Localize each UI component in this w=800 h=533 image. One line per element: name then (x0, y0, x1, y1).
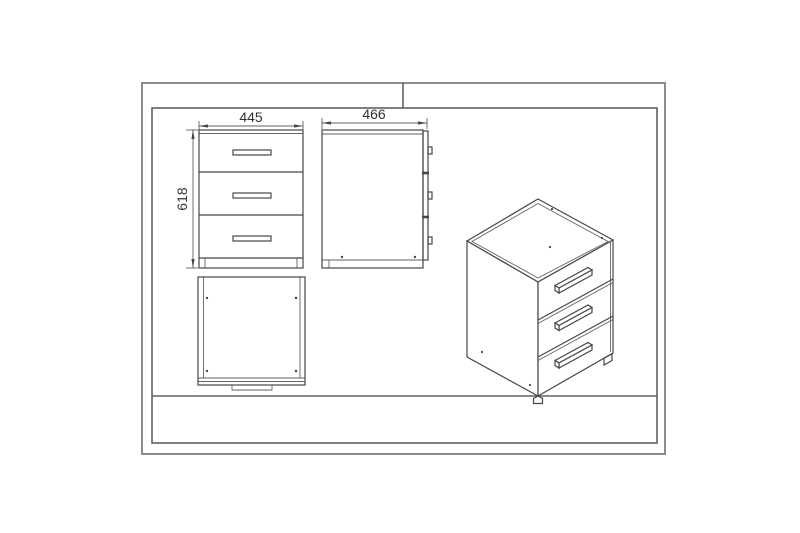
drawer-handle (233, 236, 271, 241)
furniture-drawing-canvas: 445 618 (0, 0, 800, 533)
screw-mark (551, 208, 553, 210)
screw-mark (529, 384, 531, 386)
screw-mark (549, 246, 551, 248)
screw-mark (414, 256, 416, 258)
screw-mark (341, 256, 343, 258)
handle-side-profile (428, 192, 432, 199)
screw-mark (295, 370, 297, 372)
screw-mark (206, 297, 208, 299)
screw-mark (601, 237, 603, 239)
perspective-view (467, 199, 613, 404)
top-view (198, 277, 305, 390)
height-dimension: 618 (174, 130, 198, 268)
drawer-handle (233, 150, 271, 155)
front-view-cabinet (199, 130, 303, 268)
width-dimension: 445 (199, 109, 303, 131)
foot-tab (232, 385, 272, 390)
drawer-front-strip (423, 131, 428, 260)
handle-side-profile (428, 237, 432, 244)
drawer-handle (233, 193, 271, 198)
screw-mark (295, 297, 297, 299)
depth-dimension-label: 466 (362, 106, 386, 122)
height-dimension-label: 618 (174, 187, 190, 211)
screw-mark (206, 370, 208, 372)
front-foot-3d (534, 396, 543, 404)
width-dimension-label: 445 (239, 109, 263, 125)
depth-dimension: 466 (322, 106, 427, 129)
technical-drawing-page: 445 618 (0, 0, 800, 533)
screw-mark (481, 351, 483, 353)
front-view: 445 618 (174, 109, 303, 268)
side-view-cabinet (322, 130, 432, 268)
handle-side-profile (428, 147, 432, 154)
side-view: 466 (322, 106, 432, 268)
